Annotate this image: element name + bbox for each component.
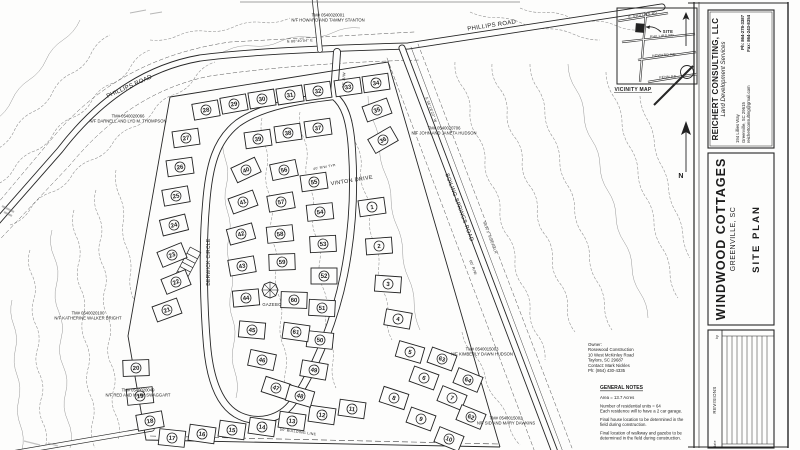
vicinity-site-marker	[636, 24, 645, 33]
svg-text:N/F SID AND MARY DAWKINS: N/F SID AND MARY DAWKINS	[477, 421, 536, 426]
lot: 51	[309, 299, 336, 316]
lot: 54	[306, 203, 334, 222]
lot-number: 50	[316, 338, 324, 345]
parcel-label: TM# 0540015002N/F SID AND MARY DAWKINS	[477, 416, 536, 426]
lot: 57	[267, 192, 295, 212]
firm-title-block: REICHERT CONSULTING, LLC Land Developmen…	[708, 10, 774, 148]
lot: 25	[162, 186, 190, 206]
revisions-by-header: by	[715, 335, 719, 339]
sidewalk-note: NEW 5' SIDEWALK	[482, 221, 498, 255]
street-label-berwick-circle: BERWICK CIRCLE	[206, 238, 212, 286]
lot: 59	[269, 254, 296, 271]
compass-icon	[654, 66, 694, 106]
vicinity-road-label: PHILLIPS RD	[650, 33, 674, 39]
lot: 56	[270, 159, 299, 180]
owner-block-line: Ph: (864) 430-4335	[588, 368, 626, 373]
lot: 15	[218, 420, 246, 439]
parcel-label: TM# 0540020706N/F JOHN AND JANETA HUDSON	[411, 126, 476, 136]
gazebo-label: GAZEBO	[262, 302, 282, 307]
revisions-date-header: date	[713, 440, 717, 447]
lot: 31	[276, 85, 304, 105]
general-note-line: field during construction.	[600, 422, 647, 427]
site-features	[175, 247, 278, 298]
lot: 6	[409, 366, 439, 390]
lot: 8	[379, 386, 409, 409]
lot: 3	[374, 275, 401, 293]
lot-number: 17	[168, 436, 176, 443]
revisions-label: REVISIONS	[712, 386, 717, 413]
lot: 52	[311, 268, 337, 284]
lot-number: 45	[248, 328, 256, 335]
firm-tagline: Land Development Services	[721, 41, 727, 116]
lot: 32	[304, 81, 332, 100]
sheet-border	[2, 2, 788, 448]
lot: 2	[365, 237, 392, 255]
lot-number: 58	[276, 232, 284, 239]
lot: 44	[232, 289, 259, 307]
lot: 16	[188, 424, 216, 443]
lot: 61	[282, 322, 310, 341]
project-location: GREENVILLE, SC	[730, 207, 737, 272]
lot: 20	[123, 360, 150, 377]
general-note-line: Each residence will to have a 2 car gara…	[600, 409, 682, 414]
lot: 40	[231, 157, 261, 182]
lot-number: 20	[133, 366, 141, 372]
svg-text:N/F RED AND MARY SWAGGART: N/F RED AND MARY SWAGGART	[106, 393, 171, 398]
parcel-label: TM# 0540020100N/F KATHERINE WALKER BRIGH…	[54, 311, 122, 321]
lot: 18	[136, 411, 164, 431]
svg-text:N/F KIMBERLY DAWN HUDSON: N/F KIMBERLY DAWN HUDSON	[451, 352, 513, 357]
lot-number: 44	[242, 296, 250, 303]
lot: 55	[300, 172, 328, 191]
firm-address: 194 Lillies Way Greenville, SC 29615 rei…	[735, 85, 752, 143]
svg-text:N/F DARNELL AND LYD M. THOMPSO: N/F DARNELL AND LYD M. THOMPSON	[90, 119, 167, 124]
lot: 12	[308, 405, 336, 424]
roads	[0, 0, 662, 450]
lot: 11	[338, 399, 366, 418]
svg-text:N/F KATHERINE WALKER BRIGHT: N/F KATHERINE WALKER BRIGHT	[54, 316, 122, 321]
lot-number: 59	[279, 260, 287, 266]
bearing-label: N 88°40'04" E	[287, 38, 314, 43]
sheet-title: SITE PLAN	[751, 205, 762, 273]
lot: 36	[368, 127, 399, 154]
lot-number: 52	[321, 274, 328, 280]
lot: 58	[266, 225, 294, 244]
parcel-label: TM# 0540020001N/F HOWARD AND TAMMY STANT…	[291, 13, 364, 23]
lot-number: 60	[291, 298, 299, 304]
lot: 37	[304, 118, 332, 137]
vicinity-road-label: HOWARD RD	[652, 52, 676, 58]
general-notes-heading: GENERAL NOTES	[600, 385, 644, 391]
notes-texts: Owner:Rosewood Construction10 West McKin…	[588, 342, 684, 441]
lot: 53	[310, 235, 337, 252]
site-plan-drawing: 1234567891011121314151617181920212223242…	[0, 0, 800, 450]
svg-text:N/F JOHN AND JANETA HUDSON: N/F JOHN AND JANETA HUDSON	[411, 131, 476, 136]
parcel-label: TM# 0540015003N/F KIMBERLY DAWN HUDSON	[451, 347, 513, 357]
gazebo-icon	[262, 282, 278, 298]
general-note-line: Area = 13.7 Acres	[600, 395, 634, 400]
lot: 43	[228, 256, 256, 276]
lot: 41	[228, 190, 258, 214]
north-arrow-label: N	[678, 173, 683, 180]
lot-number: 53	[320, 242, 328, 248]
lot: 14	[248, 417, 276, 436]
street-label-boiling-springs-road: BOILING SPRINGS ROAD	[444, 173, 475, 243]
firm-name: REICHERT CONSULTING, LLC	[711, 18, 720, 141]
street-label-phillips-road-west: PHILLIPS ROAD	[106, 74, 154, 100]
right-of-way-note: 60' R/W	[468, 260, 477, 276]
lot: 42	[226, 223, 255, 245]
lot: 29	[220, 94, 248, 114]
right-of-way-note: 40' R/W TYP.	[313, 163, 337, 171]
lot: 64	[453, 368, 483, 393]
lot: 33	[334, 77, 362, 96]
lot: 17	[158, 429, 186, 448]
lot: 60	[281, 292, 308, 309]
general-note-line: determined in the field during construct…	[600, 436, 681, 441]
lot: 35	[362, 98, 392, 122]
lot: 1	[358, 197, 386, 216]
firm-contact: Ph: 864-278-3387 Fax: 864-243-8354	[740, 15, 752, 52]
lot: 5	[395, 341, 424, 364]
revisions-table	[708, 330, 774, 448]
lot-number: 54	[316, 210, 324, 217]
lot: 28	[192, 100, 220, 120]
lot: 50	[306, 331, 334, 350]
lot: 30	[248, 89, 276, 109]
lot: 39	[244, 129, 272, 148]
lot: 62	[456, 405, 486, 430]
lot: 38	[274, 123, 302, 142]
site-plan-sheet: 1234567891011121314151617181920212223242…	[0, 0, 800, 450]
vicinity-map-label: VICINITY MAP	[614, 87, 651, 93]
project-name: WINDWOOD COTTAGES	[714, 158, 728, 321]
lot: 10	[434, 427, 464, 450]
lot-number: 51	[318, 306, 326, 312]
parcel-label: TM# 0540020049N/F RED AND MARY SWAGGART	[106, 388, 171, 398]
lot: 22	[161, 270, 191, 295]
svg-text:N/F HOWARD AND TAMMY STANTON: N/F HOWARD AND TAMMY STANTON	[291, 18, 364, 23]
project-title-block: WINDWOOD COTTAGES GREENVILLE, SC SITE PL…	[708, 153, 774, 325]
lot: 34	[362, 73, 390, 92]
right-of-way-note: 50' R/W	[342, 72, 347, 88]
parcel-label: TM# 0540020066N/F DARNELL AND LYD M. THO…	[90, 114, 167, 124]
lot: 23	[157, 243, 187, 268]
lot: 9	[406, 407, 436, 431]
lot: 27	[172, 128, 200, 147]
lot: 24	[159, 214, 188, 236]
lot: 45	[238, 321, 265, 339]
lot: 26	[166, 157, 194, 176]
lot: 4	[384, 309, 412, 329]
north-arrow-icon	[681, 121, 691, 172]
lot: 21	[152, 298, 182, 322]
lot: 46	[248, 349, 277, 370]
vicinity-north-arrow-icon	[683, 12, 690, 46]
